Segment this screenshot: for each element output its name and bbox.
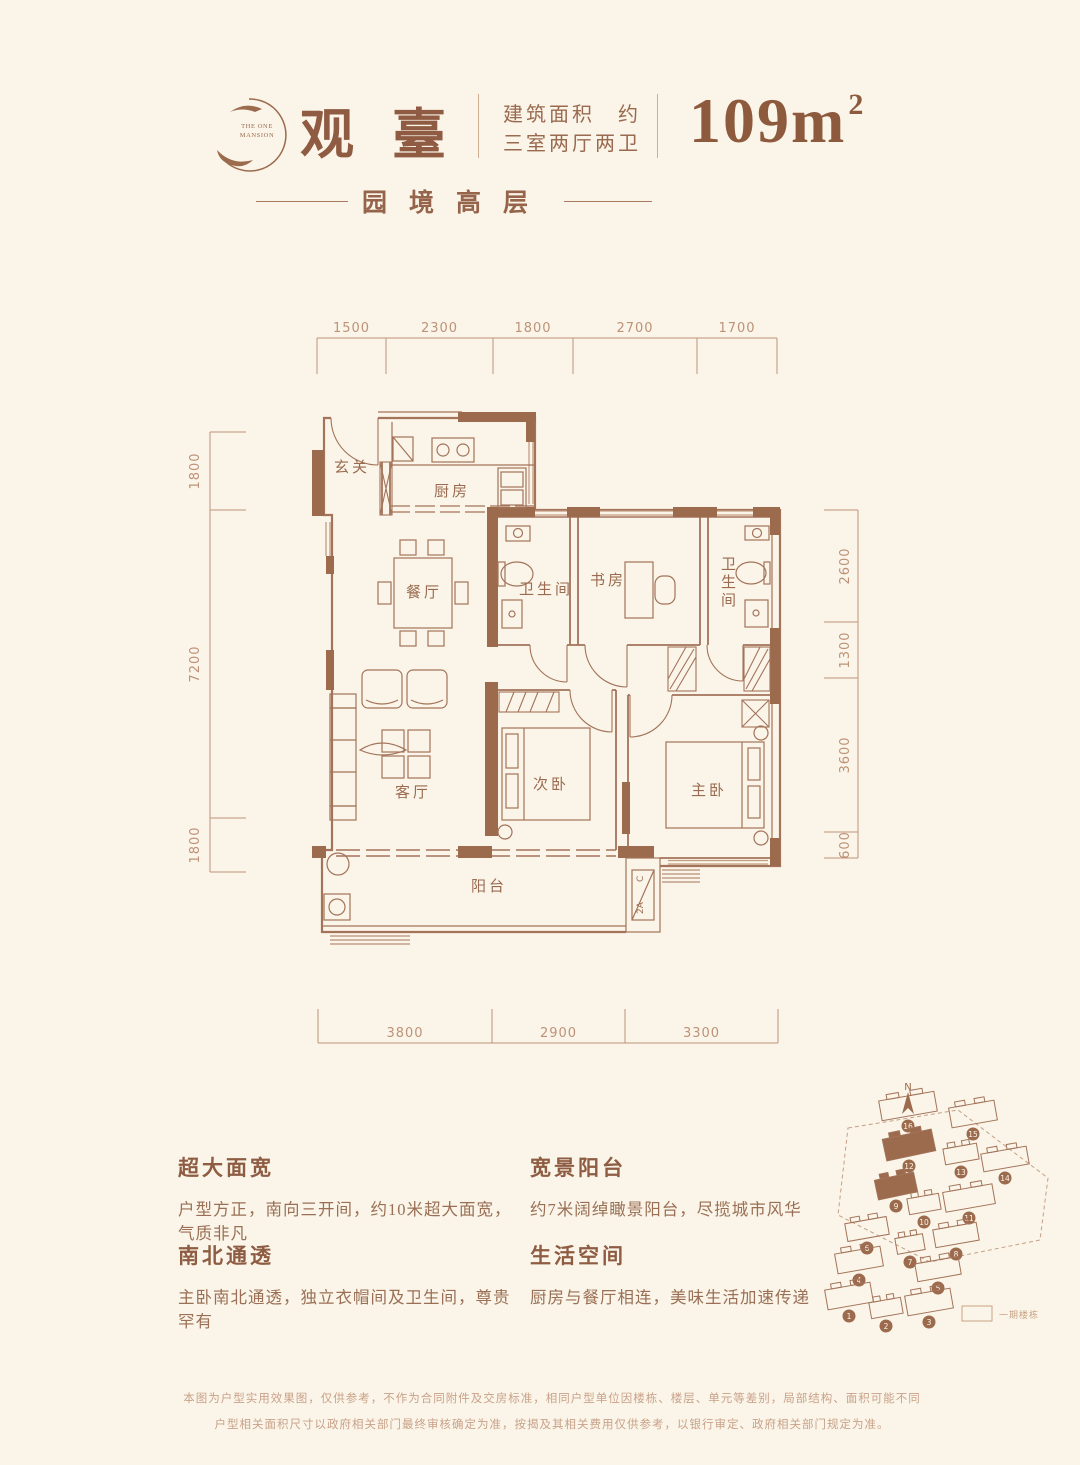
fridge-diag: [393, 437, 413, 461]
page-title: 观臺: [300, 90, 484, 150]
feature-body: 主卧南北通透，独立衣帽间及卫生间，尊贵罕有: [178, 1284, 523, 1332]
pier: [458, 412, 536, 422]
building-number: 3: [927, 1318, 932, 1327]
desk-chair: [655, 576, 675, 604]
site-building: [844, 1212, 889, 1242]
sofa-cushions: [330, 740, 356, 772]
header-divider-1: [478, 94, 479, 158]
kitchen-sink: [498, 468, 526, 508]
building-number: 7: [908, 1258, 913, 1267]
ac-platform: [626, 858, 660, 932]
pier: [567, 507, 600, 517]
dimension-label: 2900: [540, 1026, 577, 1041]
dimension-label: 1800: [514, 321, 551, 336]
dimension-label: 600: [838, 831, 853, 859]
sofa-armrest: [330, 694, 356, 708]
chair: [428, 540, 444, 555]
label-ac-c: C: [636, 876, 646, 882]
toilet-tank: [764, 562, 770, 584]
logo-brush-stroke: [217, 150, 253, 166]
pier: [485, 682, 498, 836]
site-building: [948, 1095, 998, 1128]
pillow: [506, 734, 518, 768]
label-kitchen: 厨房: [434, 483, 470, 500]
feature-ventilation: 南北通透 主卧南北通透，独立衣帽间及卫生间，尊贵罕有: [178, 1240, 523, 1332]
window-kitchen-east: [529, 440, 533, 504]
pier: [618, 846, 654, 858]
subtitle: 园境高层: [362, 183, 550, 219]
logo-swoosh: [230, 106, 262, 112]
label-study: 书房: [590, 572, 626, 589]
coffee-table: [408, 730, 430, 752]
area-number: 109m: [689, 85, 846, 156]
dimension-label: 1800: [188, 826, 203, 863]
pier: [312, 450, 324, 516]
label-dining: 餐厅: [406, 584, 442, 601]
pier: [326, 556, 334, 574]
decor-plant: [360, 743, 406, 755]
pier: [312, 846, 326, 858]
balcony-fixtures: [324, 853, 350, 920]
bath2-fixtures: [736, 526, 770, 627]
dimension-label: 7200: [188, 645, 203, 682]
subtitle-row: 园境高层: [256, 183, 622, 219]
dimension-label: 2700: [616, 321, 653, 336]
lamp: [754, 831, 768, 845]
drain: [753, 610, 759, 616]
dimension-label: 3300: [683, 1026, 720, 1041]
study-fixtures: [625, 562, 675, 618]
window-west: [326, 522, 330, 556]
site-building: [894, 1229, 925, 1255]
closet-1-hatch: [668, 647, 696, 691]
pier: [770, 838, 780, 866]
coffee-table: [382, 730, 404, 752]
site-boundary: [838, 1110, 1048, 1262]
pier: [326, 650, 334, 690]
pier: [622, 782, 630, 834]
logo-text-line2: MANSION: [240, 132, 275, 139]
sofa-armrest: [330, 806, 356, 820]
balcony-step-hatch: [330, 936, 410, 944]
wall-study-bath2: [700, 517, 708, 645]
building-number: 1: [847, 1312, 852, 1321]
site-plan: N 16151213149101167845123 一期楼栋: [818, 1080, 1070, 1340]
basin: [753, 529, 762, 538]
closet-2-hatch: [744, 647, 770, 691]
chair: [400, 540, 416, 555]
lamp: [498, 825, 512, 839]
dimension-label: 1800: [188, 452, 203, 489]
area-value: 109m2: [689, 84, 865, 158]
dimension-label: 1300: [838, 631, 853, 668]
building-number: 12: [904, 1162, 914, 1171]
dimension-label: 1500: [333, 321, 370, 336]
area-superscript: 2: [848, 88, 865, 121]
lamp: [754, 726, 768, 740]
feature-title: 南北通透: [178, 1240, 523, 1270]
disclaimer-line1: 本图为户型实用效果图，仅供参考，不作为合同附件及交房标准，相同户型单位因楼栋、楼…: [0, 1386, 1080, 1412]
dimension-label: 1700: [718, 321, 755, 336]
toilet: [736, 562, 766, 584]
bed2-door: [570, 690, 612, 732]
window-master-south: [668, 861, 768, 865]
brochure-page: THE ONE MANSION 观臺 建筑面积 约 三室两厅两卫 109m2 园…: [0, 0, 1080, 1465]
master-door: [630, 695, 672, 737]
building-number: 9: [894, 1202, 899, 1211]
stove: [432, 438, 474, 462]
armchair: [362, 670, 402, 708]
site-building: [942, 1179, 996, 1212]
site-building: [824, 1277, 874, 1310]
bath2-door: [707, 645, 743, 681]
pier: [673, 507, 717, 517]
site-buildings: 16151213149101167845123: [824, 1086, 1029, 1332]
feature-body: 户型方正，南向三开间，约10米超大面宽，气质非凡: [178, 1196, 523, 1244]
pillow: [506, 774, 518, 808]
site-building: [834, 1241, 884, 1274]
basin: [514, 529, 523, 538]
washer-drum: [329, 899, 345, 915]
shaft-x: [742, 700, 769, 727]
plan-labels: 玄关 厨房 餐厅 卫生间 书房 卫生间 客厅 次卧 主卧 阳台 2A C: [334, 459, 736, 914]
site-building: [904, 1283, 954, 1316]
drain: [509, 611, 515, 617]
chair: [378, 582, 391, 604]
feature-title: 超大面宽: [178, 1152, 523, 1182]
bed2-wardrobe-hatch: [506, 692, 554, 712]
bath-cabinet: [502, 600, 522, 628]
disclaimer-line2: 户型相关面积尺寸以政府相关部门最终审核确定为准，按揭及其相关费用仅供参考，以银行…: [0, 1412, 1080, 1438]
bath-cabinet: [745, 600, 768, 627]
pier: [770, 507, 780, 535]
disclaimer: 本图为户型实用效果图，仅供参考，不作为合同附件及交房标准，相同户型单位因楼栋、楼…: [0, 1386, 1080, 1438]
burner: [437, 444, 449, 456]
bath1-door: [530, 645, 567, 682]
header-divider-2: [657, 94, 658, 158]
dimension-label: 2600: [838, 547, 853, 584]
walls-thin: [322, 412, 780, 932]
label-bed2: 次卧: [533, 776, 569, 793]
burner: [457, 444, 469, 456]
spec-line-area: 建筑面积 约: [503, 101, 641, 130]
sink-basin: [501, 490, 523, 505]
hatches: [330, 462, 770, 944]
pier: [487, 515, 498, 647]
label-entry: 玄关: [334, 459, 370, 476]
washer: [324, 894, 350, 920]
label-master: 主卧: [691, 782, 727, 799]
label-living: 客厅: [395, 784, 431, 801]
master-window-grille: [662, 870, 700, 882]
logo-text-line1: THE ONE: [241, 123, 273, 130]
spec-line-layout: 三室两厅两卫: [503, 130, 641, 159]
entry-door: [331, 418, 378, 465]
pier: [526, 412, 535, 442]
label-ac-2a: 2A: [636, 901, 646, 914]
building-number: 11: [964, 1214, 974, 1223]
bath1-fixtures: [498, 526, 533, 628]
sink-basin: [501, 472, 523, 487]
building-number: 2: [884, 1322, 889, 1331]
subtitle-rule-right: [564, 201, 652, 202]
building-number: 13: [956, 1168, 966, 1177]
pillow: [748, 786, 760, 818]
unit-spec: 建筑面积 约 三室两厅两卫: [503, 101, 641, 159]
chair: [455, 582, 468, 604]
floor-plan: 1500230018002700170038002900330018007200…: [185, 315, 885, 1063]
coffee-table: [408, 756, 430, 778]
building-number: 14: [1000, 1174, 1010, 1183]
site-building: [942, 1138, 979, 1165]
armchair-back: [366, 700, 398, 704]
sofa: [330, 708, 356, 806]
site-building: [868, 1292, 903, 1318]
legend-label: 一期楼栋: [999, 1309, 1039, 1320]
building-number: 10: [919, 1218, 929, 1227]
building-number: 15: [968, 1130, 978, 1139]
pier: [458, 846, 492, 858]
dimension-label: 3600: [838, 736, 853, 773]
feature-width: 超大面宽 户型方正，南向三开间，约10米超大面宽，气质非凡: [178, 1152, 523, 1244]
label-balcony: 阳台: [471, 878, 507, 895]
dimension-label: 2300: [421, 321, 458, 336]
chair: [400, 631, 416, 646]
subtitle-rule-left: [256, 201, 348, 202]
desk: [625, 562, 653, 618]
site-legend: 一期楼栋: [962, 1306, 1039, 1321]
legend-swatch: [962, 1306, 992, 1321]
pier: [770, 628, 780, 704]
label-bath1: 卫生间: [519, 581, 573, 598]
label-bath2: 卫生间: [719, 556, 736, 610]
brand-logo: THE ONE MANSION: [204, 90, 294, 180]
armchair-back: [411, 700, 443, 704]
coffee-table: [382, 756, 404, 778]
chair: [428, 631, 444, 646]
study-door: [585, 645, 627, 687]
dimension-label: 3800: [386, 1026, 423, 1041]
north-indicator: N: [902, 1082, 914, 1114]
wall-bath1-study: [570, 517, 578, 645]
north-label: N: [904, 1082, 911, 1093]
pillow: [748, 748, 760, 780]
armchair: [407, 670, 447, 708]
